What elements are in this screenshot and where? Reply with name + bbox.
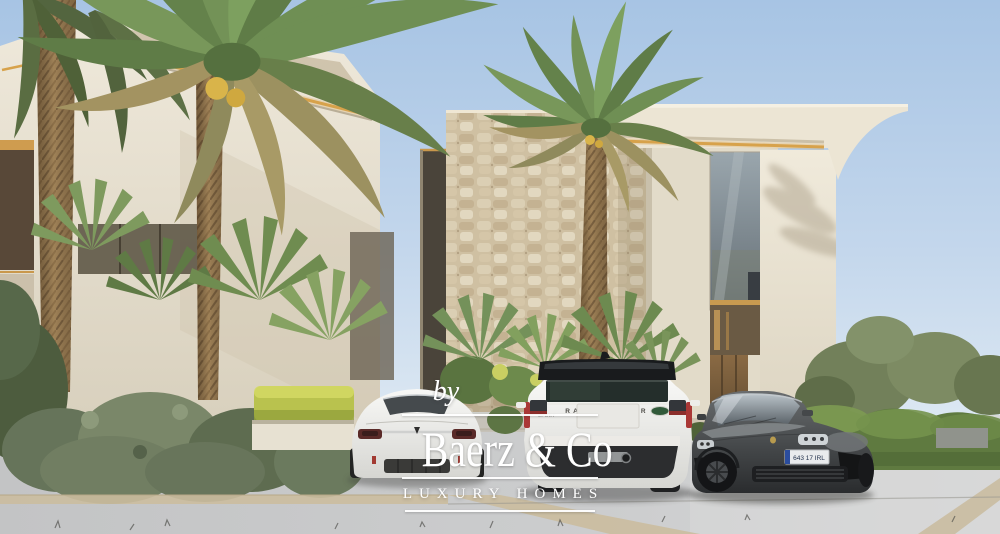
scene-svg: RANGE ROVER SPORT bbox=[0, 0, 1000, 534]
yellow-hedge bbox=[252, 386, 354, 450]
villa-rendering: RANGE ROVER SPORT bbox=[0, 0, 1000, 534]
range-rover-car: RANGE ROVER SPORT bbox=[516, 352, 700, 502]
porsche-crest-icon bbox=[770, 437, 776, 444]
license-plate-text: 643 17 IRL bbox=[793, 455, 825, 462]
land-rover-badge-icon bbox=[651, 407, 669, 416]
lit-interior-window bbox=[0, 140, 34, 150]
license-plate: 643 17 IRL bbox=[785, 450, 829, 464]
stone-planter-block bbox=[936, 428, 988, 448]
